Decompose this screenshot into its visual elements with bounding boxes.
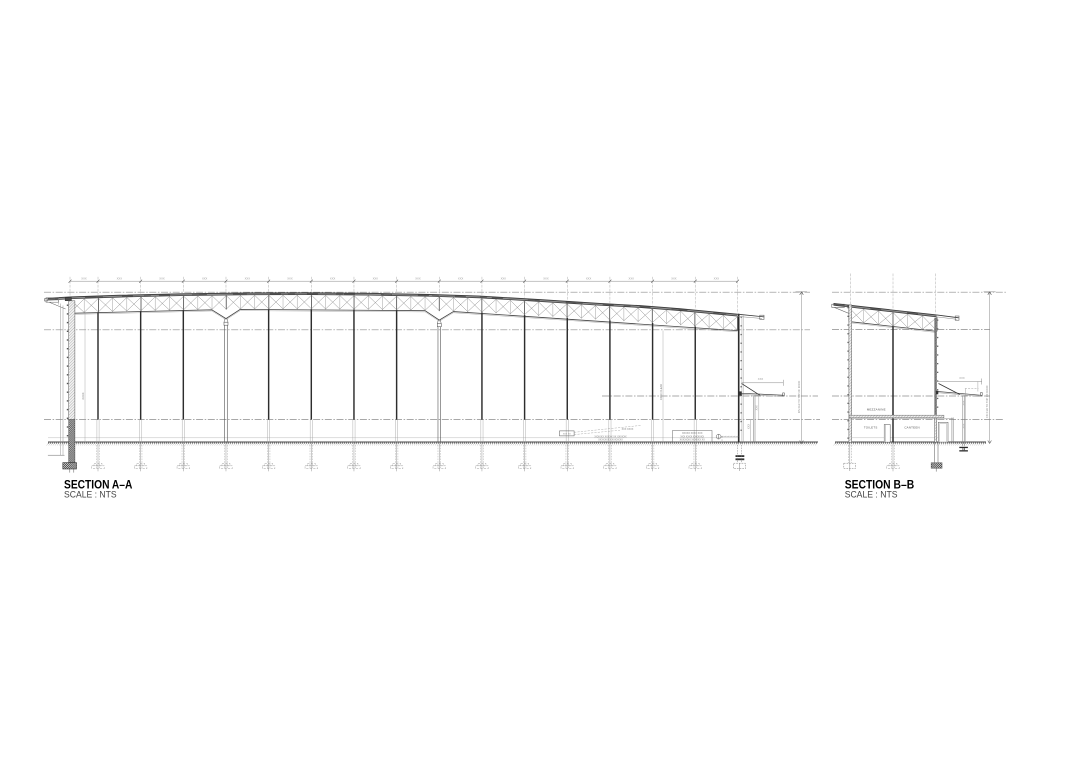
svg-text:XXX: XXX (287, 276, 293, 280)
svg-text:XXX: XXX (543, 276, 549, 280)
svg-text:XXX: XXX (501, 276, 507, 280)
svg-text:FIN FLR TO TOP OF ROOF: FIN FLR TO TOP OF ROOF (797, 380, 801, 413)
svg-text:XXX: XXX (755, 405, 759, 410)
svg-text:XXX: XXX (159, 276, 165, 280)
svg-text:XXX XX: XXX XX (563, 433, 571, 435)
svg-text:TOILETS: TOILETS (864, 426, 878, 430)
svg-text:XXXX: XXXX (81, 392, 85, 399)
svg-text:XXXXXXXX XXXXXXX: XXXXXXXX XXXXXXX (598, 438, 623, 441)
svg-text:XXX: XXX (81, 276, 87, 280)
svg-text:CANTEEN: CANTEEN (904, 426, 920, 430)
svg-text:XXX: XXX (330, 276, 336, 280)
svg-text:FIN FLR TO TOP OF ROOF: FIN FLR TO TOP OF ROOF (985, 385, 989, 418)
svg-text:XXX: XXX (671, 276, 677, 280)
svg-text:XXX: XXX (415, 276, 421, 280)
svg-text:XXXX CLEAR: XXXX CLEAR (659, 384, 663, 400)
svg-text:SCALE : NTS: SCALE : NTS (64, 490, 117, 500)
svg-text:XXX: XXX (586, 276, 592, 280)
svg-text:XXX: XXX (373, 276, 379, 280)
svg-text:XXX: XXX (758, 377, 764, 381)
svg-text:XXX: XXX (245, 276, 251, 280)
svg-text:XXX: XXX (117, 276, 123, 280)
svg-text:XXX: XXX (961, 400, 965, 405)
svg-text:XXXXXXX XXXXXX XX: XXXXXXX XXXXXX XX (680, 438, 706, 441)
svg-text:XXX: XXX (746, 424, 750, 429)
svg-text:SCALE : NTS: SCALE : NTS (845, 490, 898, 500)
svg-text:XXX: XXX (629, 276, 635, 280)
svg-text:XXX: XXX (959, 376, 965, 380)
svg-text:XXX: XXX (714, 276, 720, 280)
svg-text:XXX: XXX (202, 276, 208, 280)
svg-text:MEZZANINE: MEZZANINE (867, 407, 886, 411)
svg-text:XXX: XXX (458, 276, 464, 280)
svg-text:XXX XXXX: XXX XXXX (622, 428, 634, 431)
svg-text:XXX: XXX (961, 423, 965, 428)
